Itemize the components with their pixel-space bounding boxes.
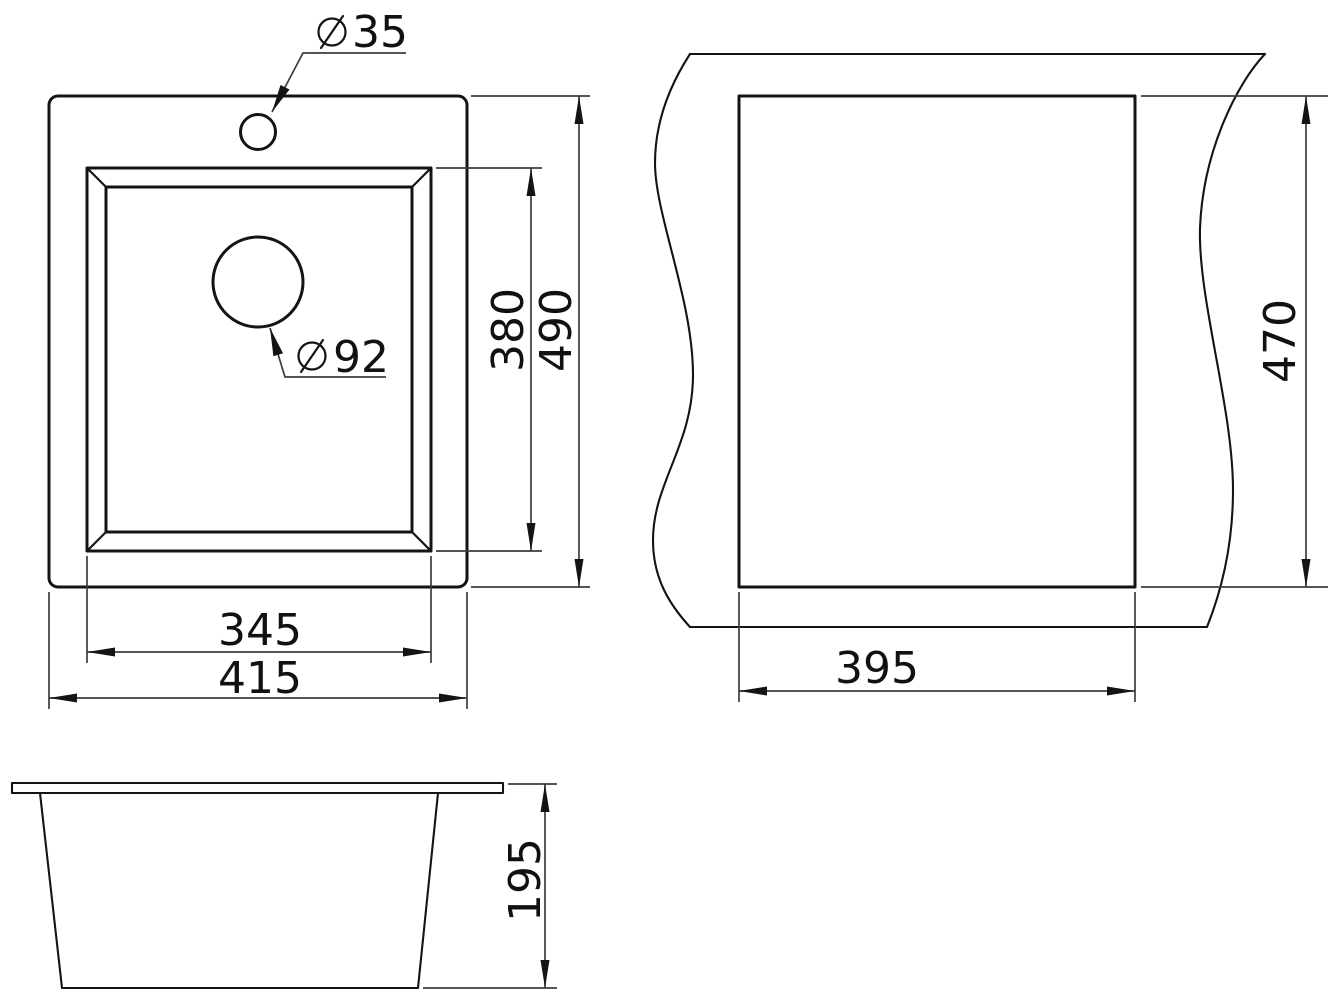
break-line-left xyxy=(653,54,693,627)
bowl-corner-chamfer xyxy=(412,168,431,187)
drain-hole xyxy=(213,237,303,327)
dimension-cutout-length: 470 xyxy=(1141,96,1328,587)
bowl-corner-chamfer xyxy=(87,168,106,187)
overall-width-value: 415 xyxy=(218,653,302,704)
arrowhead-up xyxy=(541,784,550,812)
leader-arrowhead xyxy=(272,85,290,112)
arrowhead-up xyxy=(575,96,584,124)
depth-value: 195 xyxy=(500,838,551,922)
cutout-outline xyxy=(739,96,1135,587)
dimension-cutout-width: 395 xyxy=(739,592,1135,702)
leader-line xyxy=(272,53,406,112)
overall-length-value: 490 xyxy=(531,288,582,372)
dimension-depth: 195 xyxy=(423,784,557,988)
top-view: 35 92 380 490 xyxy=(49,7,590,709)
faucet-hole xyxy=(241,115,276,150)
arrowhead-down xyxy=(1302,559,1311,587)
arrowhead-down xyxy=(527,523,536,551)
leader-drain-hole: 92 xyxy=(270,328,389,383)
bowl-corner-chamfer xyxy=(412,532,431,551)
bowl-width-value: 345 xyxy=(218,605,302,656)
arrowhead-left xyxy=(739,687,767,696)
arrowhead-up xyxy=(1302,96,1311,124)
dimension-bowl-length: 380 xyxy=(436,168,542,551)
countertop-cutout-view: 470 395 xyxy=(653,54,1328,702)
bowl-length-value: 380 xyxy=(483,288,534,372)
faucet-hole-diameter-label: 35 xyxy=(352,7,408,58)
arrowhead-left xyxy=(87,648,115,657)
arrowhead-right xyxy=(1107,687,1135,696)
arrowhead-down xyxy=(541,960,550,988)
diameter-symbol xyxy=(319,16,346,48)
bowl-corner-chamfer xyxy=(87,532,106,551)
arrowhead-right xyxy=(439,694,467,703)
drain-hole-diameter-label: 92 xyxy=(333,332,389,383)
sink-rim-outline xyxy=(49,96,467,587)
bowl-side-left xyxy=(40,793,62,988)
arrowhead-left xyxy=(49,694,77,703)
cutout-width-value: 395 xyxy=(835,643,919,694)
bowl-side-right xyxy=(418,793,438,988)
leader-arrowhead xyxy=(270,328,283,356)
sink-technical-drawing: 35 92 380 490 xyxy=(0,0,1339,1004)
cutout-length-value: 470 xyxy=(1255,299,1306,383)
diameter-symbol xyxy=(299,340,326,372)
dimension-bowl-width: 345 xyxy=(87,556,431,663)
sink-flange-profile xyxy=(12,783,503,793)
arrowhead-right xyxy=(403,648,431,657)
arrowhead-down xyxy=(575,559,584,587)
arrowhead-up xyxy=(527,168,536,196)
front-view: 195 xyxy=(12,783,557,988)
